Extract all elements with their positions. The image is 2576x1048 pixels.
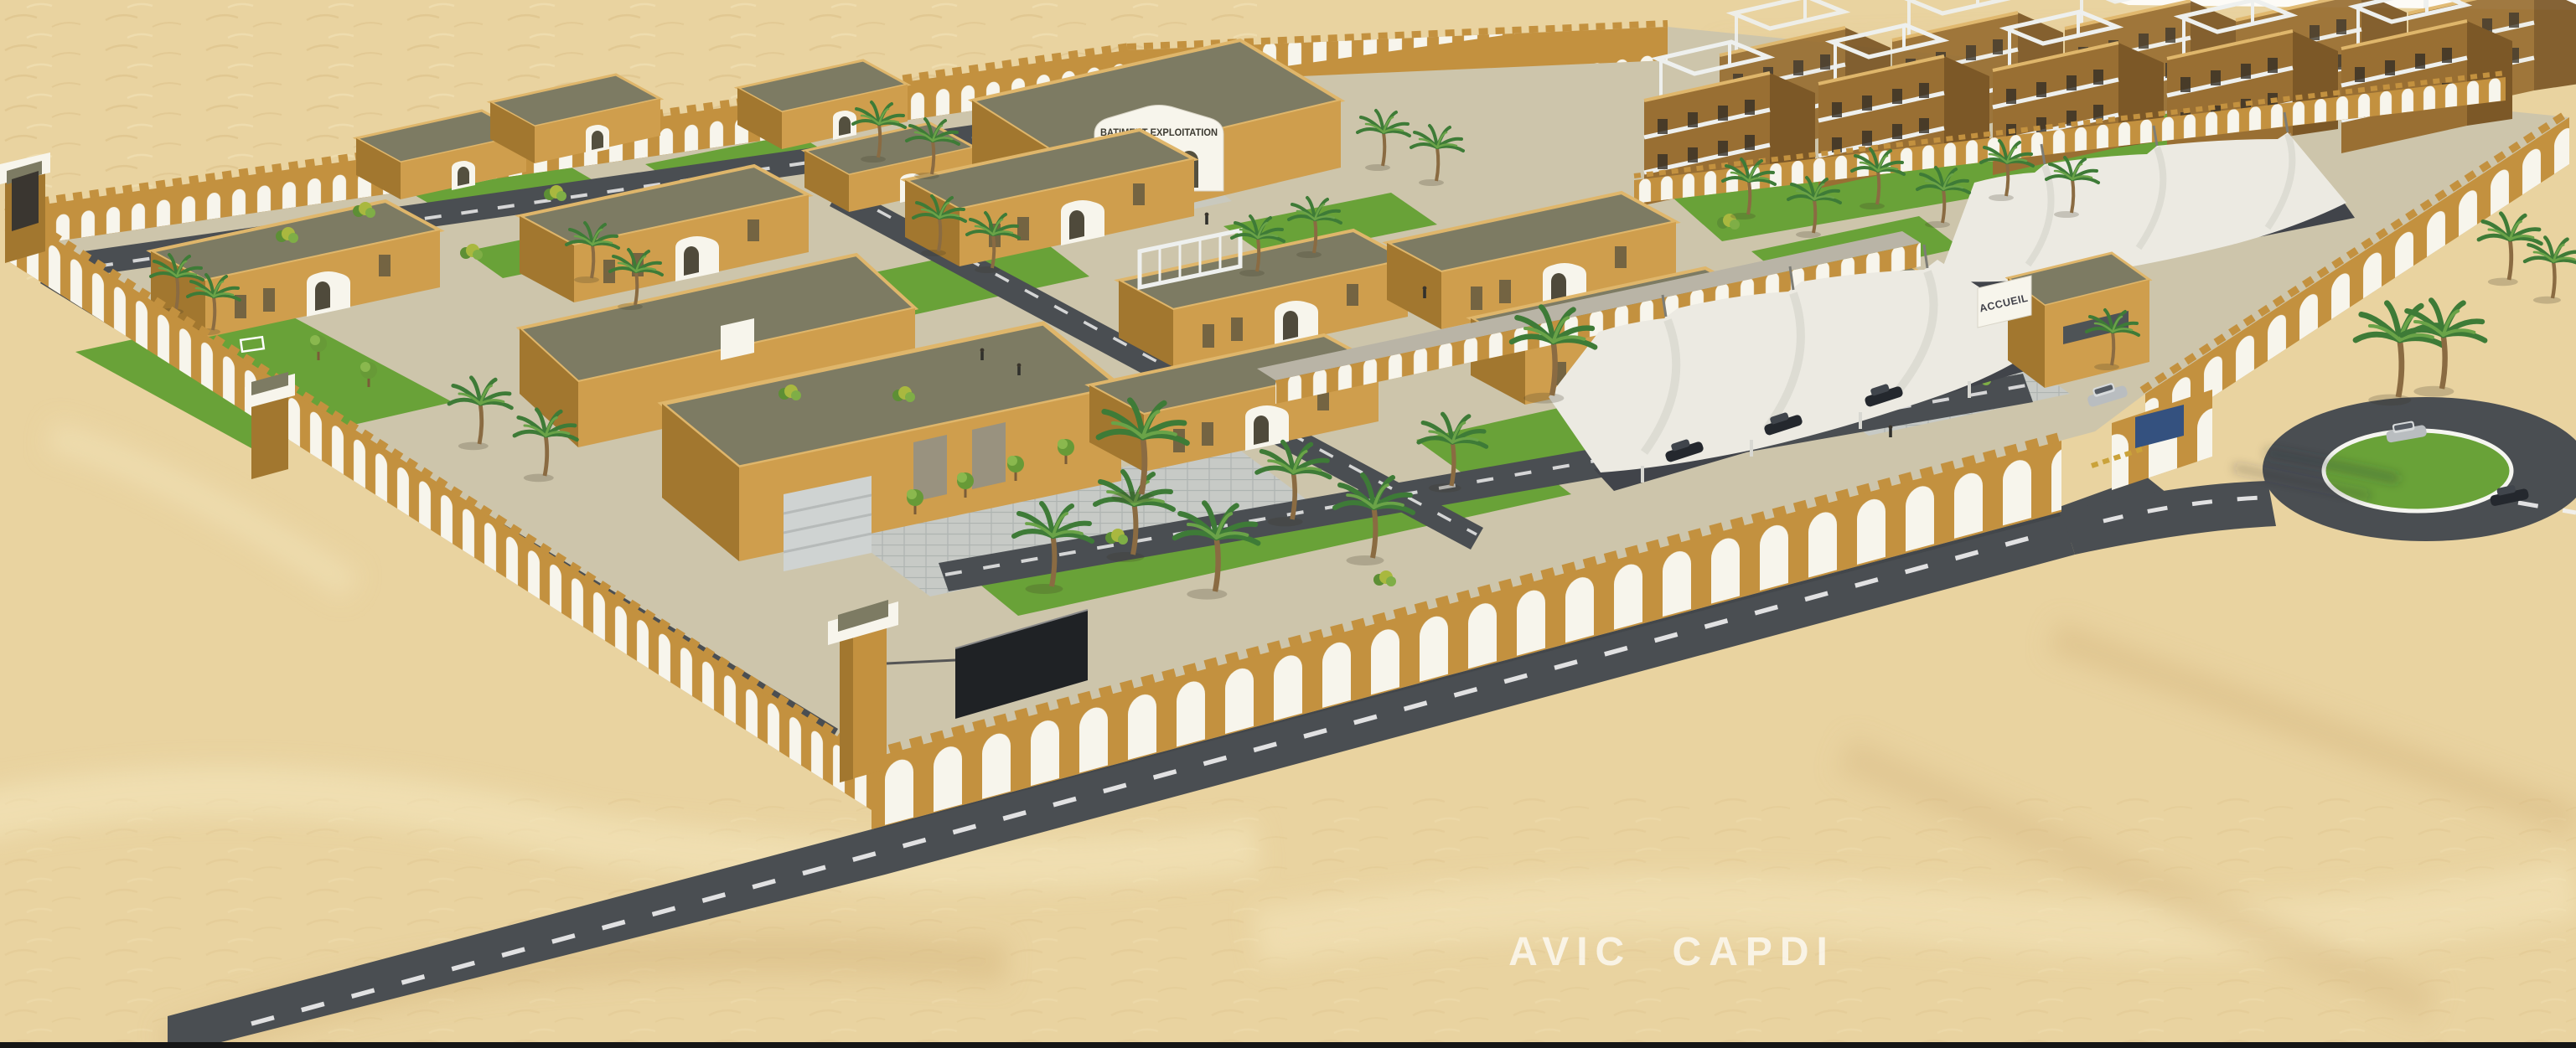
watermark: AVIC CAPDI [1508, 930, 1835, 974]
bottom-bar [0, 1042, 2576, 1048]
corner-tower [0, 152, 50, 263]
architectural-rendering: BATIMENT EXPLOITATION [0, 0, 2576, 1048]
wall-pylon [245, 372, 295, 479]
rendered-scene: BATIMENT EXPLOITATION [0, 0, 2576, 1048]
